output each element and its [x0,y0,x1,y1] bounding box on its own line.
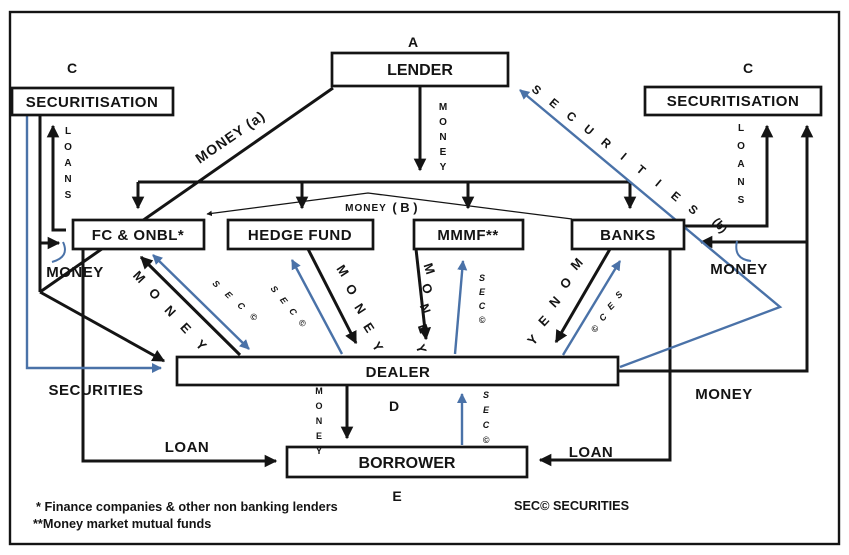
label-money-lender-down: MONEY [439,102,447,173]
label-money-b: MONEY [345,203,387,214]
label-sec-mmmf-char: S [479,273,485,283]
label-money-hedge-char: E [360,320,377,336]
box-hedge-fund: HEDGE FUND [228,220,373,249]
label-sec-mmmf-char: C [479,301,486,311]
label-sec-banks-char: © [589,323,601,335]
box-banks: BANKS [572,220,684,249]
label-money-a: MONEY (a) [192,107,268,166]
label-sec-hedge-char: E [278,295,290,307]
box-borrower-label: BORROWER [359,455,456,472]
label-money-lender-down-char: O [439,117,447,128]
box-fc-onbl-label: FC & ONBL* [92,227,185,244]
legend-sec-securities: SEC© SECURITIES [514,499,629,513]
label-money-mmmf: MONEY [413,261,438,355]
label-money-banks-char: E [535,312,552,329]
label-loans-right-char: S [738,195,745,206]
diagram-canvas: LENDER SECURITISATION SECURITISATION FC … [0,0,849,555]
label-money-mmmf-char: E [415,322,432,335]
label-money-banks-char: M [568,255,586,273]
label-money-dealer-borrower: MONEY [315,386,323,456]
label-money-lender-down-char: Y [440,162,447,173]
label-money-hedge-char: O [342,281,360,298]
label-sec-hedge-char: © [296,317,308,329]
label-sec-fc-char: S [210,278,221,289]
label-sec-fc-char: © [248,311,260,323]
box-securitisation-right-label: SECURITISATION [667,93,800,110]
label-money-hedge: MONEY [334,262,387,355]
label-money-right: MONEY [710,261,768,278]
label-sec-borrower: SEC© [483,390,490,445]
label-sec-borrower-char: S [483,390,489,400]
label-money-dealer-borrower-char: N [316,416,323,426]
label-securities-b-char: S [529,82,544,98]
label-loans-right-char: N [737,177,744,188]
arrow-sec-dealer-hedge [292,260,342,354]
label-sec-mmmf-char: © [479,315,486,325]
label-sec-hedge-char: S [269,284,281,295]
box-mmmf: MMMF** [414,220,523,249]
label-money-fc: MONEY [130,268,210,354]
crossing-arc-left [52,242,65,262]
box-securitisation-left-label: SECURITISATION [26,94,159,111]
label-money-fc-char: O [146,285,164,303]
box-mmmf-label: MMMF** [437,227,498,244]
label-sec-banks: SEC© [589,289,625,334]
label-loans-right-char: A [737,159,744,170]
label-loans-left-char: L [65,126,71,137]
label-money-hedge-char: N [351,301,369,317]
label-sec-borrower-char: C [483,420,490,430]
label-money-fc-char: M [130,268,148,286]
label-sec-hedge: SEC© [269,284,309,329]
label-money-dealer-borrower-char: Y [316,446,322,456]
arrow-dealer-money-fc [141,257,240,355]
label-sec-banks-char: C [597,311,609,323]
box-dealer-label: DEALER [366,364,431,381]
box-borrower: BORROWER [287,447,527,477]
arrow-sec-fc-dealer [153,255,249,349]
label-securities-b-char: I [618,150,630,163]
label-securities-b-char: T [634,162,649,178]
box-securitisation-left: SECURITISATION [12,88,173,115]
arrow-money-b-thin [207,193,572,219]
label-sec-borrower-char: © [483,435,490,445]
marker-d: D [389,398,399,414]
label-sec-fc: SEC© [210,278,259,323]
label-money-lender-down-char: N [439,132,446,143]
label-loan-right: LOAN [569,444,614,461]
label-money-mmmf-char: N [417,302,434,316]
box-dealer: DEALER [177,357,618,385]
label-money-hedge-char: M [334,262,352,279]
label-money-dealer-borrower-char: O [315,401,322,411]
marker-c-right: C [743,60,753,76]
footnote-fc-onbl: * Finance companies & other non banking … [36,500,338,514]
label-securities-b-char: E [546,95,561,111]
label-loans-left-char: A [64,158,71,169]
box-lender: LENDER [332,53,508,86]
label-loan-left: LOAN [165,439,210,456]
label-securities-b-char: I [653,177,665,190]
label-loans-right-char: L [738,123,744,134]
label-loans-left: LOANS [64,126,72,201]
marker-e: E [392,488,401,504]
label-securities-b-char: U [581,122,597,138]
crossing-arc-right [736,241,751,261]
label-securities-b-char: E [668,188,683,204]
label-loans-left-char: O [64,142,72,153]
label-sec-banks-char: E [605,300,617,312]
label-securities-b-char: C [564,108,580,125]
marker-a: A [408,34,418,50]
label-money-lender-down-char: M [439,102,447,113]
label-money-left: MONEY [46,264,104,281]
box-lender-label: LENDER [387,62,453,79]
label-money-dealer-borrower-char: M [315,386,323,396]
label-money-dealer-borrower-char: E [316,431,322,441]
arrow-sec-dealer-mmmf [455,261,463,354]
arrow-money-a-to-dealer [40,292,164,361]
box-hedge-fund-label: HEDGE FUND [248,227,352,244]
label-money-banks-char: Y [524,331,541,348]
label-securities-b-suffix: (b) [710,215,731,236]
label-loans-right-char: O [737,141,745,152]
label-money-banks-char: N [546,293,563,310]
label-money-lender-down-char: E [440,147,447,158]
label-money-fc-char: E [177,320,194,337]
label-money-bottom-right: MONEY [695,386,753,403]
box-securitisation-right: SECURITISATION [645,87,821,115]
box-fc-onbl: FC & ONBL* [73,220,204,249]
label-money-fc-char: Y [193,337,210,354]
marker-c-left: C [67,60,77,76]
footnote-mmmf: **Money market mutual funds [33,517,211,531]
label-sec-banks-char: S [613,289,624,300]
label-sec-mmmf: SEC© [479,273,486,325]
label-loans-right: LOANS [737,123,745,206]
label-money-banks-char: O [557,274,575,292]
label-money-mmmf-char: Y [413,342,430,355]
label-loans-left-char: N [64,174,71,185]
label-sec-fc-char: C [235,300,247,312]
label-money-fc-char: N [162,302,179,319]
label-sec-borrower-char: E [483,405,490,415]
label-money-mmmf-char: M [420,261,438,276]
label-sec-hedge-char: C [287,306,299,318]
label-securities-left: SECURITIES [48,382,143,399]
marker-b: ( B ) [392,200,417,215]
label-securities-b-char: R [598,135,614,152]
label-sec-mmmf-char: E [479,287,486,297]
label-loans-left-char: S [65,190,72,201]
box-banks-label: BANKS [600,227,656,244]
label-sec-fc-char: E [223,289,235,301]
label-money-hedge-char: Y [369,339,386,355]
label-securities-b-char: S [686,202,701,218]
